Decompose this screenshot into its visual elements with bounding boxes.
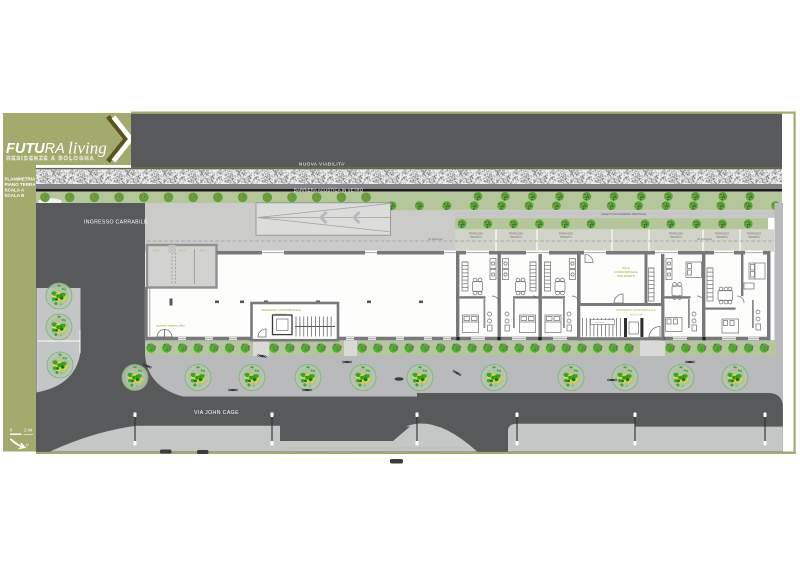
svg-text:FUTURA: FUTURA [6, 141, 65, 157]
svg-text:ascensore: ascensore [595, 322, 605, 324]
svg-text:SCALA A: SCALA A [5, 188, 25, 193]
svg-text:INGRESSO CARRABILE: INGRESSO CARRABILE [84, 220, 148, 226]
svg-text:PER EVENTI: PER EVENTI [617, 274, 635, 278]
svg-text:PRIVATO: PRIVATO [560, 235, 571, 239]
svg-text:TERRAZZO: TERRAZZO [509, 232, 523, 236]
svg-text:2 mt: 2 mt [24, 428, 33, 433]
svg-text:SCALA B: SCALA B [630, 313, 643, 317]
svg-text:INGRESSO CONDOMINIALE: INGRESSO CONDOMINIALE [616, 308, 656, 312]
svg-text:filo fabbricato: filo fabbricato [697, 238, 712, 241]
svg-text:filo fabbricato: filo fabbricato [428, 238, 443, 241]
svg-text:living: living [68, 139, 107, 158]
svg-text:PRIVATO: PRIVATO [716, 235, 727, 239]
svg-text:TERRAZZO: TERRAZZO [559, 232, 573, 236]
svg-text:P.A.2: P.A.2 [179, 249, 186, 253]
svg-text:TERRAZZO: TERRAZZO [469, 232, 483, 236]
svg-text:PRIVATO: PRIVATO [670, 235, 681, 239]
svg-text:P.A.3: P.A.3 [200, 249, 207, 253]
svg-text:RESIDENZE A BOLOGNA: RESIDENZE A BOLOGNA [7, 156, 95, 162]
svg-text:SCALA B: SCALA B [5, 193, 26, 198]
svg-text:PLANIMETRIA: PLANIMETRIA [5, 177, 36, 182]
svg-text:TERRAZZO: TERRAZZO [715, 232, 729, 236]
svg-text:P.A.1: P.A.1 [153, 249, 160, 253]
svg-text:PRIVATO: PRIVATO [510, 235, 521, 239]
svg-text:TERRAZZO: TERRAZZO [747, 232, 761, 236]
svg-text:NUOVA VIABILITA’: NUOVA VIABILITA’ [299, 162, 346, 167]
svg-text:TERRAZZO: TERRAZZO [669, 232, 683, 236]
svg-text:PRIVATO: PRIVATO [470, 235, 481, 239]
svg-text:VIALETTO DI INGRESSO PEDONALE: VIALETTO DI INGRESSO PEDONALE [601, 212, 646, 216]
svg-text:PRIVATO: PRIVATO [748, 235, 759, 239]
svg-text:ingresso negozio-uffici: ingresso negozio-uffici [156, 324, 185, 328]
svg-text:PIANO TERRA: PIANO TERRA [5, 182, 37, 187]
svg-text:BARRIERA ACUSTICA IN VETRO: BARRIERA ACUSTICA IN VETRO [294, 187, 364, 192]
svg-text:VIA JOHN CAGE: VIA JOHN CAGE [194, 410, 239, 416]
